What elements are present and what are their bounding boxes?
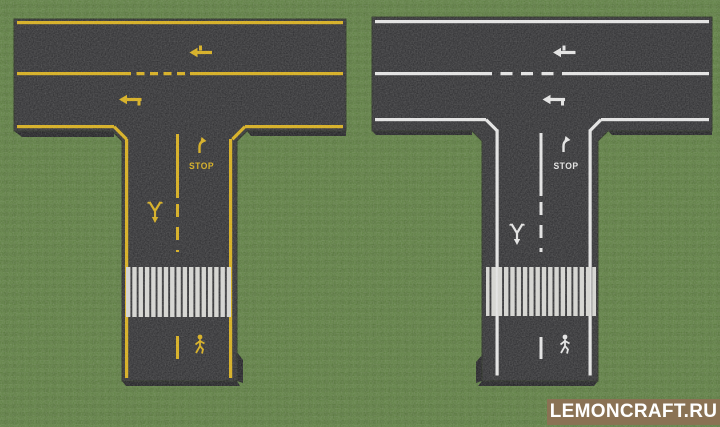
watermark-text: LEMONCRAFT.RU: [550, 401, 718, 423]
scene-svg: STOP: [0, 0, 720, 427]
watermark-banner: LEMONCRAFT.RU: [547, 399, 720, 425]
game-screenshot: STOP: [0, 0, 720, 427]
noise-texture-overlay: [0, 0, 720, 427]
